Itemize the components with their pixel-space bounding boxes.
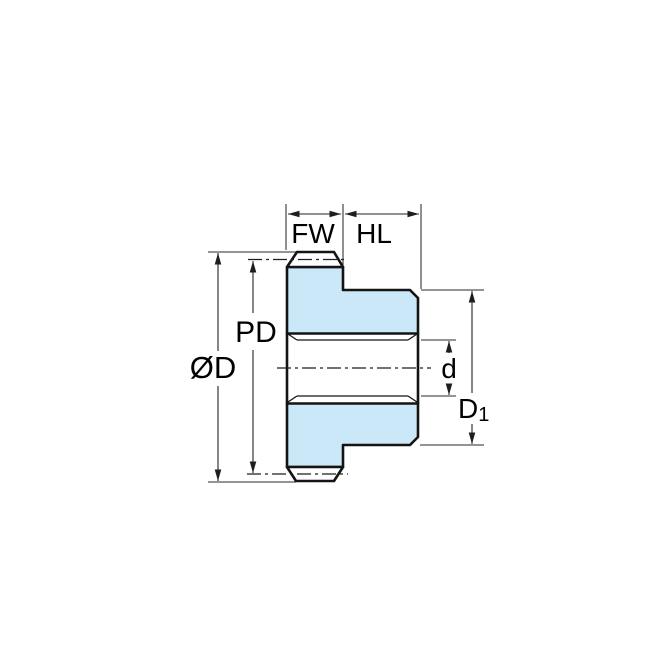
- label-pitch-diameter: PD: [235, 316, 277, 349]
- drawing-canvas: FW HL ØD PD d D1: [0, 0, 670, 670]
- label-hub-length: HL: [356, 218, 392, 249]
- gear-dimension-diagram: FW HL ØD PD d D1: [0, 0, 670, 670]
- label-bore-diameter: d: [441, 353, 457, 384]
- label-outside-diameter: ØD: [190, 350, 237, 385]
- label-face-width: FW: [291, 218, 335, 249]
- background: [0, 0, 670, 670]
- label-hub-diameter-base: D: [458, 393, 478, 424]
- label-hub-diameter-subscript: 1: [478, 404, 489, 426]
